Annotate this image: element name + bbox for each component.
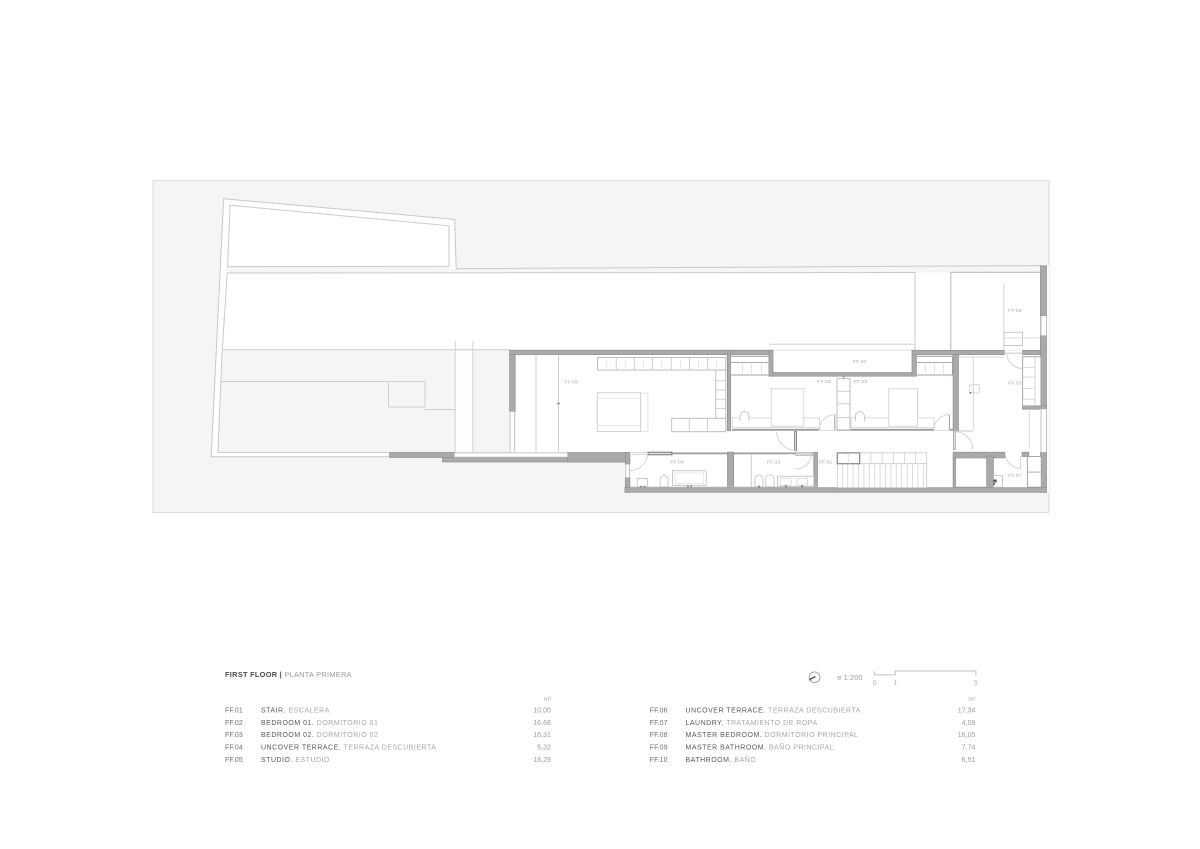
- svg-text:MASTER BATHROOM. BAÑO PRINCIPA: MASTER BATHROOM. BAÑO PRINCIPAL: [686, 743, 835, 752]
- svg-text:FF.03: FF.03: [854, 379, 868, 385]
- svg-text:10,00: 10,00: [533, 707, 551, 714]
- svg-text:5: 5: [974, 680, 978, 687]
- svg-text:FF.05: FF.05: [1008, 380, 1022, 386]
- svg-text:e 1:200: e 1:200: [837, 673, 862, 682]
- svg-text:FF.09: FF.09: [650, 745, 668, 752]
- svg-text:18,29: 18,29: [533, 757, 551, 764]
- svg-text:FF.09: FF.09: [670, 460, 684, 466]
- svg-text:FF.01: FF.01: [225, 707, 243, 714]
- svg-text:BEDROOM 01. DORMITORIO 01: BEDROOM 01. DORMITORIO 01: [261, 720, 378, 727]
- svg-text:FIRST FLOOR | PLANTA PRIMERA: FIRST FLOOR | PLANTA PRIMERA: [225, 670, 352, 679]
- svg-text:UNCOVER TERRACE. TERRAZA DESCU: UNCOVER TERRACE. TERRAZA DESCUBIERTA: [261, 745, 436, 752]
- svg-text:FF.04: FF.04: [853, 359, 867, 365]
- svg-text:17,34: 17,34: [958, 707, 976, 714]
- svg-text:4,09: 4,09: [962, 720, 976, 727]
- svg-text:1: 1: [893, 680, 897, 687]
- svg-text:MASTER BEDROOM. DORMITORIO PRI: MASTER BEDROOM. DORMITORIO PRINCIPAL: [686, 732, 859, 739]
- svg-text:LAUNDRY. TRATAMIENTO DE ROPA: LAUNDRY. TRATAMIENTO DE ROPA: [686, 720, 818, 727]
- svg-text:FF.02: FF.02: [225, 720, 243, 727]
- svg-text:5,32: 5,32: [537, 745, 551, 752]
- svg-text:FF.01: FF.01: [819, 460, 833, 466]
- svg-text:UNCOVER TERRACE. TERRAZA DESCU: UNCOVER TERRACE. TERRAZA DESCUBIERTA: [686, 707, 861, 714]
- svg-text:BEDROOM 02. DORMITORIO 02: BEDROOM 02. DORMITORIO 02: [261, 732, 378, 739]
- svg-text:FF.07: FF.07: [1008, 473, 1022, 479]
- svg-text:FF.05: FF.05: [225, 757, 243, 764]
- svg-text:FF.10: FF.10: [650, 757, 668, 764]
- svg-text:7,74: 7,74: [962, 745, 976, 752]
- svg-text:FF.04: FF.04: [225, 745, 243, 752]
- svg-text:m²: m²: [969, 697, 976, 703]
- svg-text:BATHROOM. BAÑO: BATHROOM. BAÑO: [686, 755, 757, 764]
- svg-text:16,31: 16,31: [533, 732, 551, 739]
- svg-text:FF.08: FF.08: [565, 380, 579, 386]
- svg-text:FF.10: FF.10: [767, 460, 781, 466]
- svg-text:FF.03: FF.03: [225, 732, 243, 739]
- svg-text:FF.06: FF.06: [1008, 308, 1022, 314]
- svg-text:FF.07: FF.07: [650, 720, 668, 727]
- svg-text:FF.02: FF.02: [817, 379, 831, 385]
- svg-text:16,66: 16,66: [533, 720, 551, 727]
- svg-text:FF.06: FF.06: [650, 707, 668, 714]
- svg-text:STUDIO. ESTUDIO: STUDIO. ESTUDIO: [261, 757, 330, 764]
- svg-text:0: 0: [873, 680, 877, 687]
- svg-text:16,05: 16,05: [958, 732, 976, 739]
- svg-text:6,51: 6,51: [962, 757, 976, 764]
- svg-text:FF.08: FF.08: [650, 732, 668, 739]
- svg-text:STAIR. ESCALERA: STAIR. ESCALERA: [261, 707, 330, 714]
- svg-text:m²: m²: [544, 697, 551, 703]
